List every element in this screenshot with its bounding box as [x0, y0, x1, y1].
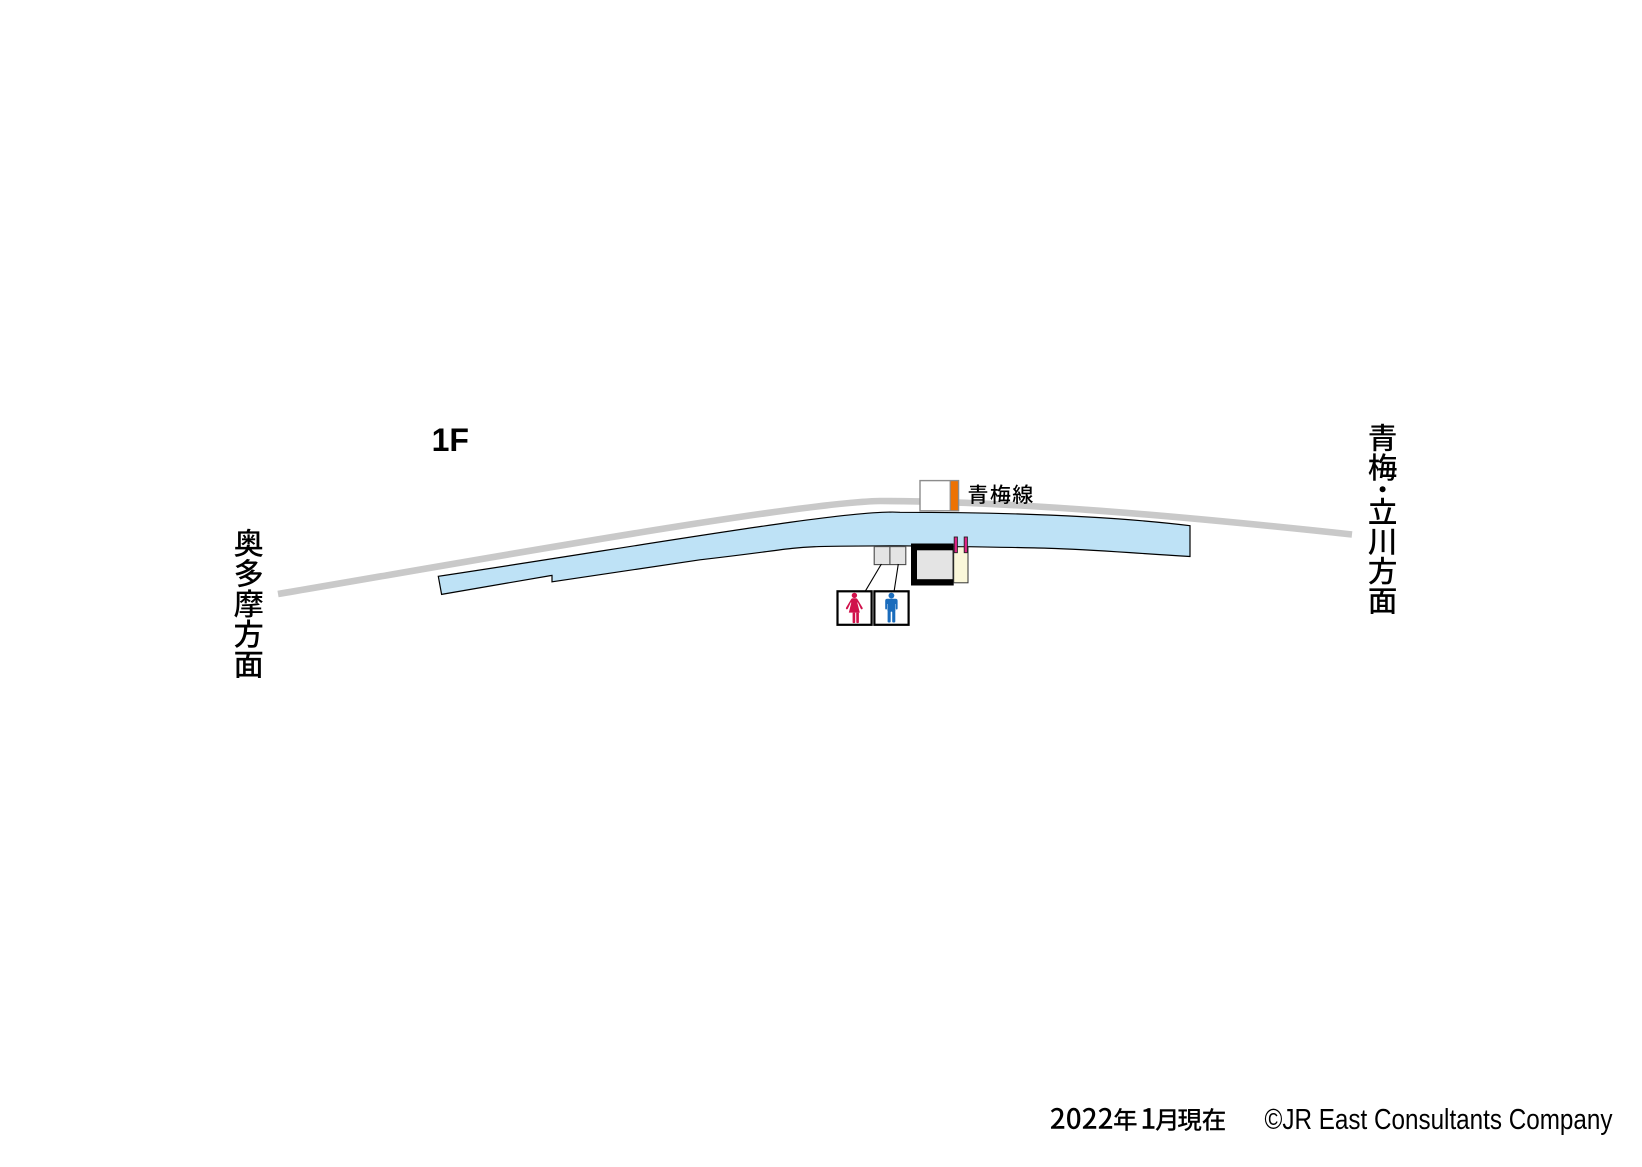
svg-text:1F: 1F [432, 422, 469, 458]
svg-text:©JR East Consultants Company: ©JR East Consultants Company [1265, 1104, 1614, 1136]
